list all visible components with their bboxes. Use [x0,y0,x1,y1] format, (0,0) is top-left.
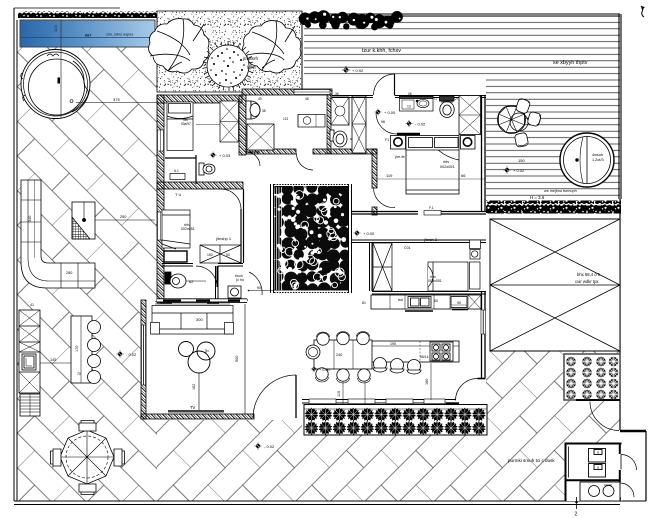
svg-text:17: 17 [434,97,438,101]
svg-text:se xbyyh thptv: se xbyyh thptv [553,60,588,66]
svg-text:119: 119 [386,173,393,178]
svg-text:2: 2 [575,512,578,518]
svg-text:50: 50 [226,253,230,257]
svg-text:27: 27 [455,97,459,101]
svg-text:rhtv: rhtv [443,160,449,164]
svg-text:cuir wdkr tpx: cuir wdkr tpx [575,279,599,284]
svg-text:280: 280 [66,271,72,275]
svg-text:48: 48 [305,97,309,101]
svg-text:121: 121 [283,117,289,121]
svg-text:+ 0.02: + 0.02 [513,168,525,173]
svg-text:+ 0.00: + 0.00 [363,231,375,236]
svg-text:TV: TV [190,405,196,410]
svg-text:81: 81 [362,301,366,305]
svg-text:250: 250 [120,215,126,219]
svg-text:13: 13 [407,105,411,109]
svg-text:115: 115 [337,391,341,397]
svg-text:bhx 58,4 o 5: bhx 58,4 o 5 [577,272,601,277]
svg-text:jmdtsrh: jmdtsrh [242,56,259,61]
svg-text:90: 90 [457,301,461,305]
svg-text:162: 162 [192,384,196,390]
svg-text:T U: T U [175,192,181,197]
svg-text:08: 08 [408,92,412,96]
svg-text:160: 160 [425,379,429,385]
svg-text:90: 90 [257,286,261,290]
svg-text:002x051: 002x051 [428,279,442,283]
svg-text:38: 38 [262,109,266,113]
svg-text:C01: C01 [404,246,411,250]
svg-text:+ 0.00: + 0.00 [319,368,330,372]
svg-text:55/14: 55/14 [420,355,429,359]
svg-text:j/tnshp 1: j/tnshp 1 [215,236,232,241]
svg-text:145: 145 [50,358,56,362]
svg-text:a: a [597,466,599,470]
svg-text:purmki smuh tci c dusk: purmki smuh tci c dusk [508,458,555,463]
svg-text:H = 3.6: H = 3.6 [530,195,545,200]
svg-text:375: 375 [113,97,120,102]
svg-text:66: 66 [461,173,466,178]
svg-text:300: 300 [196,317,203,322]
svg-text:500: 500 [235,356,239,362]
svg-text:96: 96 [381,120,385,124]
svg-text:j/m.fe: j/m.fe [394,154,406,159]
svg-text:tsd: tsd [398,298,403,302]
svg-text:002x051: 002x051 [181,227,195,231]
svg-text:62: 62 [189,279,194,284]
svg-text:F.1: F.1 [429,206,434,210]
svg-text:60: 60 [434,299,438,303]
svg-text:lqrvf: lqrvf [247,65,256,70]
svg-text:240: 240 [336,353,342,357]
svg-text:cim. sdns wqres: cim. sdns wqres [106,33,133,37]
svg-text:+ 0.00: + 0.00 [384,110,396,115]
svg-text:ws mejknu tsrmuph: ws mejknu tsrmuph [544,189,577,193]
svg-text:F1: F1 [385,138,389,142]
svg-text:+ 0.03: + 0.03 [219,153,231,158]
svg-text:002x051: 002x051 [440,165,455,169]
svg-text:1.2ot/3: 1.2ot/3 [592,158,604,162]
svg-text:+ 0.92: + 0.92 [352,68,364,73]
svg-text:- 0.02: - 0.02 [415,122,426,127]
svg-text:A.1: A.1 [174,169,179,173]
svg-text:(x ho: (x ho [236,278,244,282]
svg-text:340: 340 [28,216,32,222]
svg-text:150: 150 [518,158,525,163]
svg-text:00a/97: 00a/97 [181,122,191,126]
svg-text:- 0.02: - 0.02 [264,444,275,449]
svg-text:49: 49 [258,97,262,101]
svg-text:150: 150 [207,253,213,257]
svg-text:170: 170 [75,346,79,352]
svg-text:a: a [597,451,599,455]
svg-text:tzur k.khh, fchxv: tzur k.khh, fchxv [362,48,401,54]
svg-text:190: 190 [390,342,396,346]
svg-text:j/hrsh 3: j/hrsh 3 [423,237,438,242]
svg-text:4wsuh: 4wsuh [592,153,603,157]
svg-text:123: 123 [53,25,58,32]
svg-text:- 0.02: - 0.02 [126,352,137,357]
svg-text:667: 667 [85,34,91,38]
svg-text:70: 70 [77,372,81,376]
svg-text:41: 41 [30,303,34,307]
